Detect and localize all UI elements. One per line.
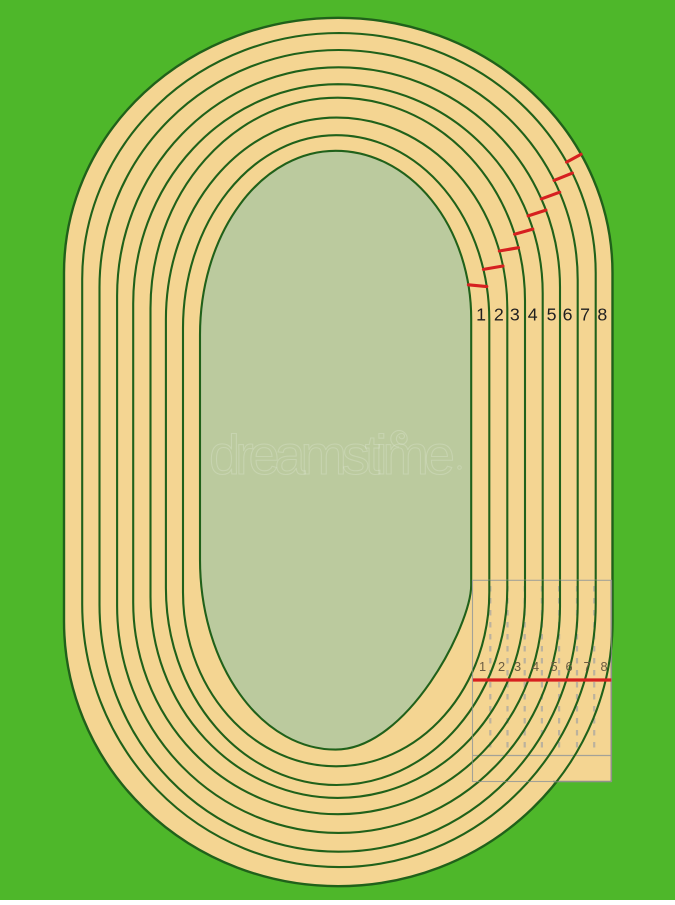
svg-text:4: 4 — [532, 659, 539, 674]
svg-text:4: 4 — [528, 305, 538, 325]
svg-text:5: 5 — [547, 305, 557, 325]
svg-text:8: 8 — [597, 305, 607, 325]
svg-text:1: 1 — [476, 305, 486, 325]
svg-text:2: 2 — [494, 305, 504, 325]
svg-text:7: 7 — [580, 305, 590, 325]
svg-text:5: 5 — [550, 659, 557, 674]
svg-text:dreamstime: dreamstime — [209, 423, 457, 486]
svg-text:1: 1 — [479, 659, 486, 674]
svg-text:7: 7 — [583, 659, 590, 674]
svg-text:6: 6 — [563, 305, 573, 325]
svg-text:3: 3 — [510, 305, 520, 325]
svg-text:3: 3 — [514, 659, 521, 674]
svg-text:2: 2 — [498, 659, 505, 674]
svg-text:8: 8 — [600, 659, 607, 674]
svg-text:6: 6 — [565, 659, 572, 674]
